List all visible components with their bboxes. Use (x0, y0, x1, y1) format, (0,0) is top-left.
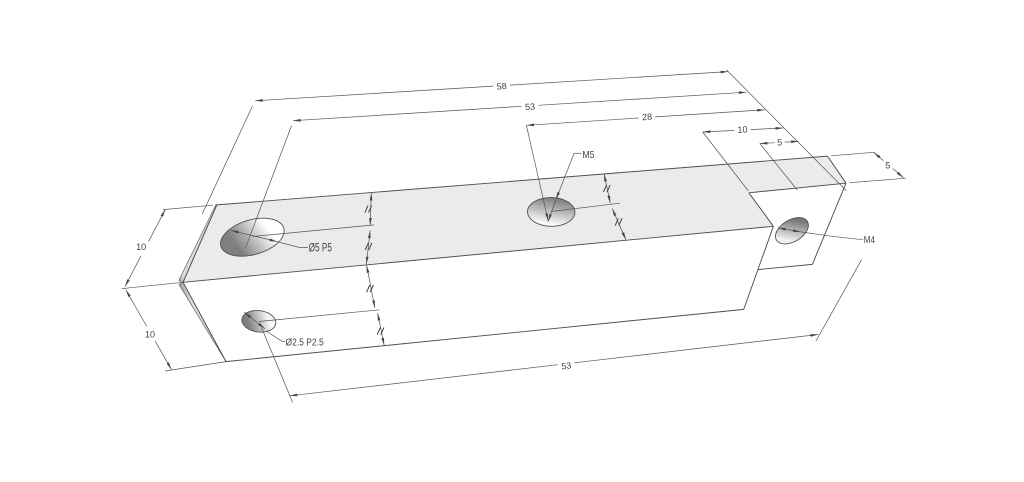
svg-text:28: 28 (642, 112, 653, 123)
svg-text:Ø2.5 P2.5: Ø2.5 P2.5 (286, 338, 325, 349)
svg-text:53: 53 (561, 360, 572, 371)
svg-text:5: 5 (885, 160, 890, 170)
svg-text:M5: M5 (582, 149, 594, 161)
svg-text:10: 10 (737, 124, 747, 134)
svg-text:5: 5 (777, 137, 783, 147)
svg-text:10: 10 (136, 242, 146, 252)
svg-text:58: 58 (496, 81, 507, 92)
svg-text:10: 10 (145, 330, 155, 340)
svg-text:M4: M4 (864, 235, 875, 246)
svg-text:Ø5 P5: Ø5 P5 (309, 241, 333, 255)
svg-text:53: 53 (525, 101, 536, 112)
